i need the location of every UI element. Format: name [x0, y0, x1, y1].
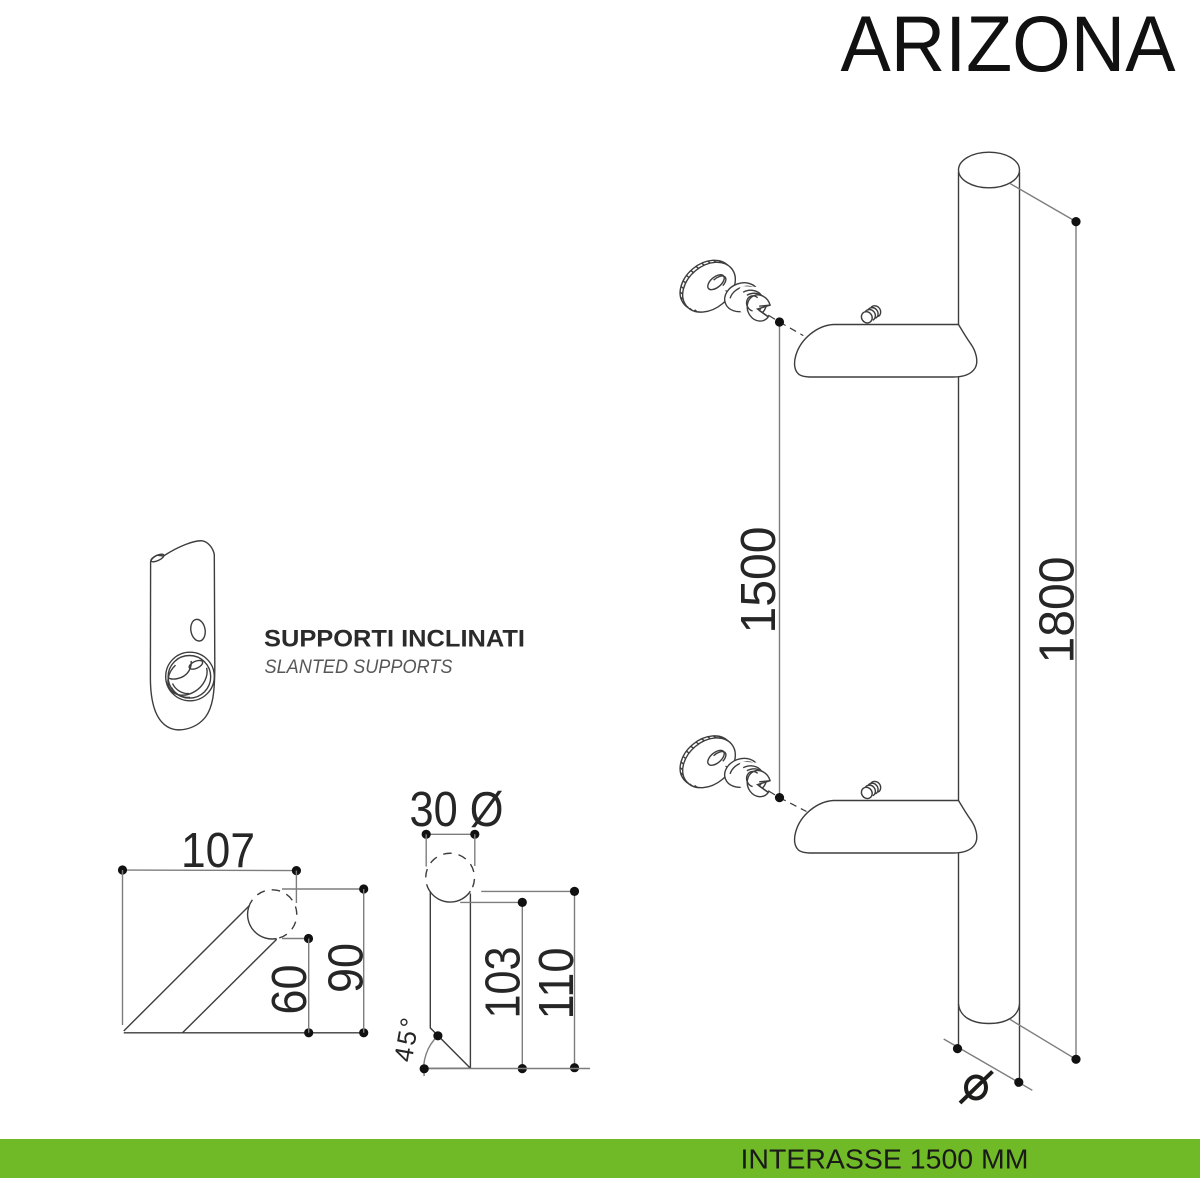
svg-text:1800: 1800 — [1031, 557, 1085, 664]
svg-text:30 Ø: 30 Ø — [410, 783, 504, 837]
svg-text:107: 107 — [181, 824, 255, 878]
svg-text:110: 110 — [530, 948, 584, 1020]
svg-text:ARIZONA: ARIZONA — [841, 0, 1176, 88]
svg-text:90: 90 — [320, 943, 374, 993]
svg-text:SLANTED SUPPORTS: SLANTED SUPPORTS — [265, 657, 453, 678]
svg-text:SUPPORTI INCLINATI: SUPPORTI INCLINATI — [264, 626, 525, 653]
svg-text:INTERASSE 1500 MM: INTERASSE 1500 MM — [741, 1144, 1029, 1175]
svg-text:1500: 1500 — [732, 527, 786, 634]
svg-text:60: 60 — [263, 965, 317, 1015]
svg-text:103: 103 — [477, 947, 531, 1019]
